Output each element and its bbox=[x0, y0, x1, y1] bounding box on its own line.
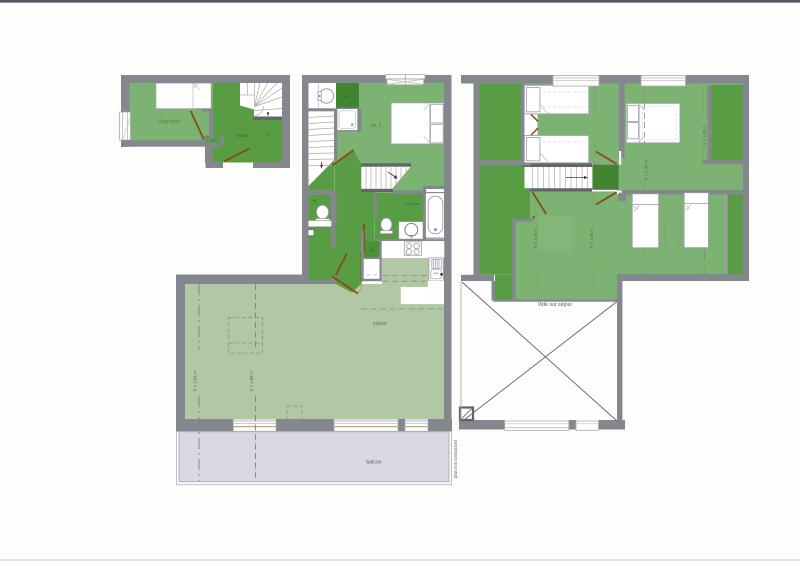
svg-text:h < 1,00 m: h < 1,00 m bbox=[533, 228, 538, 248]
svg-text:balcon: balcon bbox=[366, 460, 381, 466]
svg-text:ch. 1: ch. 1 bbox=[371, 123, 382, 129]
svg-text:Vide sur séjour: Vide sur séjour bbox=[538, 302, 573, 308]
svg-text:gs: gs bbox=[266, 132, 270, 137]
svg-text:h < 1,00 m: h < 1,00 m bbox=[702, 125, 707, 145]
svg-text:gs: gs bbox=[211, 137, 215, 142]
svg-text:s. d'eau: s. d'eau bbox=[405, 201, 419, 206]
svg-text:séjour: séjour bbox=[373, 321, 387, 327]
svg-text:h < 1,80 m: h < 1,80 m bbox=[249, 371, 254, 391]
svg-text:chambre: chambre bbox=[157, 120, 181, 126]
svg-text:h < 1,30 m: h < 1,30 m bbox=[644, 160, 649, 180]
svg-text:wc: wc bbox=[313, 199, 318, 203]
svg-text:sdb: sdb bbox=[343, 94, 350, 99]
svg-text:entrée: entrée bbox=[237, 133, 250, 138]
svg-text:h < 1,80 m: h < 1,80 m bbox=[589, 228, 594, 248]
svg-text:plan non contractuel: plan non contractuel bbox=[453, 440, 458, 478]
svg-text:pl: pl bbox=[370, 248, 373, 253]
svg-text:h < 1,00 m: h < 1,00 m bbox=[193, 371, 198, 391]
